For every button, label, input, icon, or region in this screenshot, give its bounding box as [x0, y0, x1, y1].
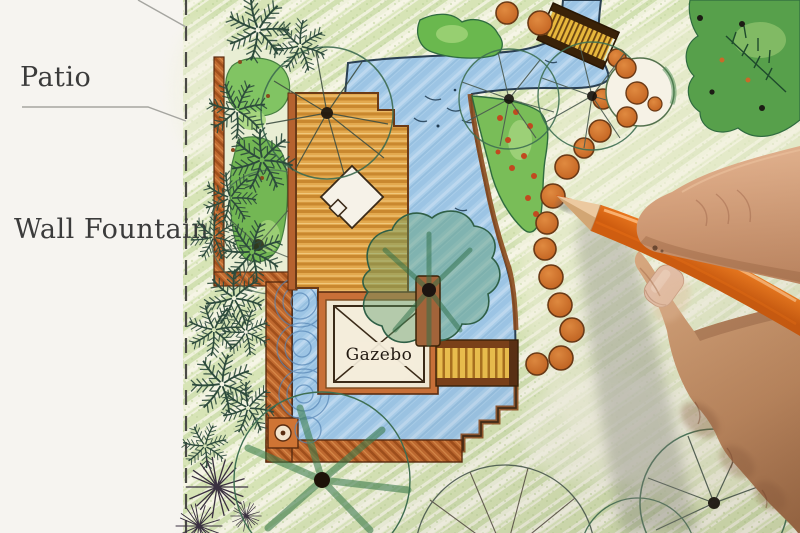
- garden-plan-photo: Patio Wall Fountain: [0, 0, 800, 533]
- photo-vignette: [0, 0, 800, 533]
